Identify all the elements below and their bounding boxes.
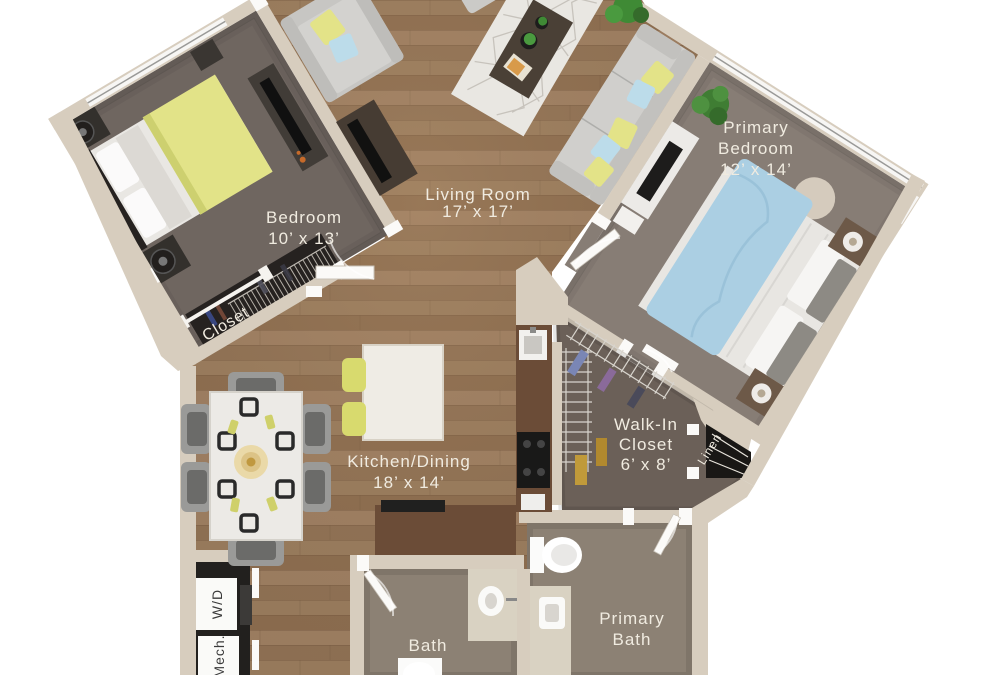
svg-text:12’ x 14’: 12’ x 14’ bbox=[720, 160, 792, 179]
svg-text:Kitchen/Dining: Kitchen/Dining bbox=[347, 452, 471, 471]
svg-text:10’ x 13’: 10’ x 13’ bbox=[268, 229, 340, 248]
svg-text:Bedroom: Bedroom bbox=[266, 208, 342, 227]
svg-text:Walk-In: Walk-In bbox=[614, 415, 678, 434]
svg-text:W/D: W/D bbox=[209, 589, 225, 619]
svg-text:Primary: Primary bbox=[723, 118, 789, 137]
svg-text:Bath: Bath bbox=[409, 636, 448, 655]
svg-text:Closet: Closet bbox=[619, 435, 673, 454]
svg-text:Primary: Primary bbox=[599, 609, 665, 628]
svg-text:Bedroom: Bedroom bbox=[718, 139, 794, 158]
svg-text:17’ x 17’: 17’ x 17’ bbox=[442, 202, 514, 221]
svg-text:18’ x 14’: 18’ x 14’ bbox=[373, 473, 445, 492]
svg-text:6’ x 8’: 6’ x 8’ bbox=[621, 455, 672, 474]
svg-text:Bath: Bath bbox=[613, 630, 652, 649]
svg-text:Mech.: Mech. bbox=[211, 634, 227, 675]
